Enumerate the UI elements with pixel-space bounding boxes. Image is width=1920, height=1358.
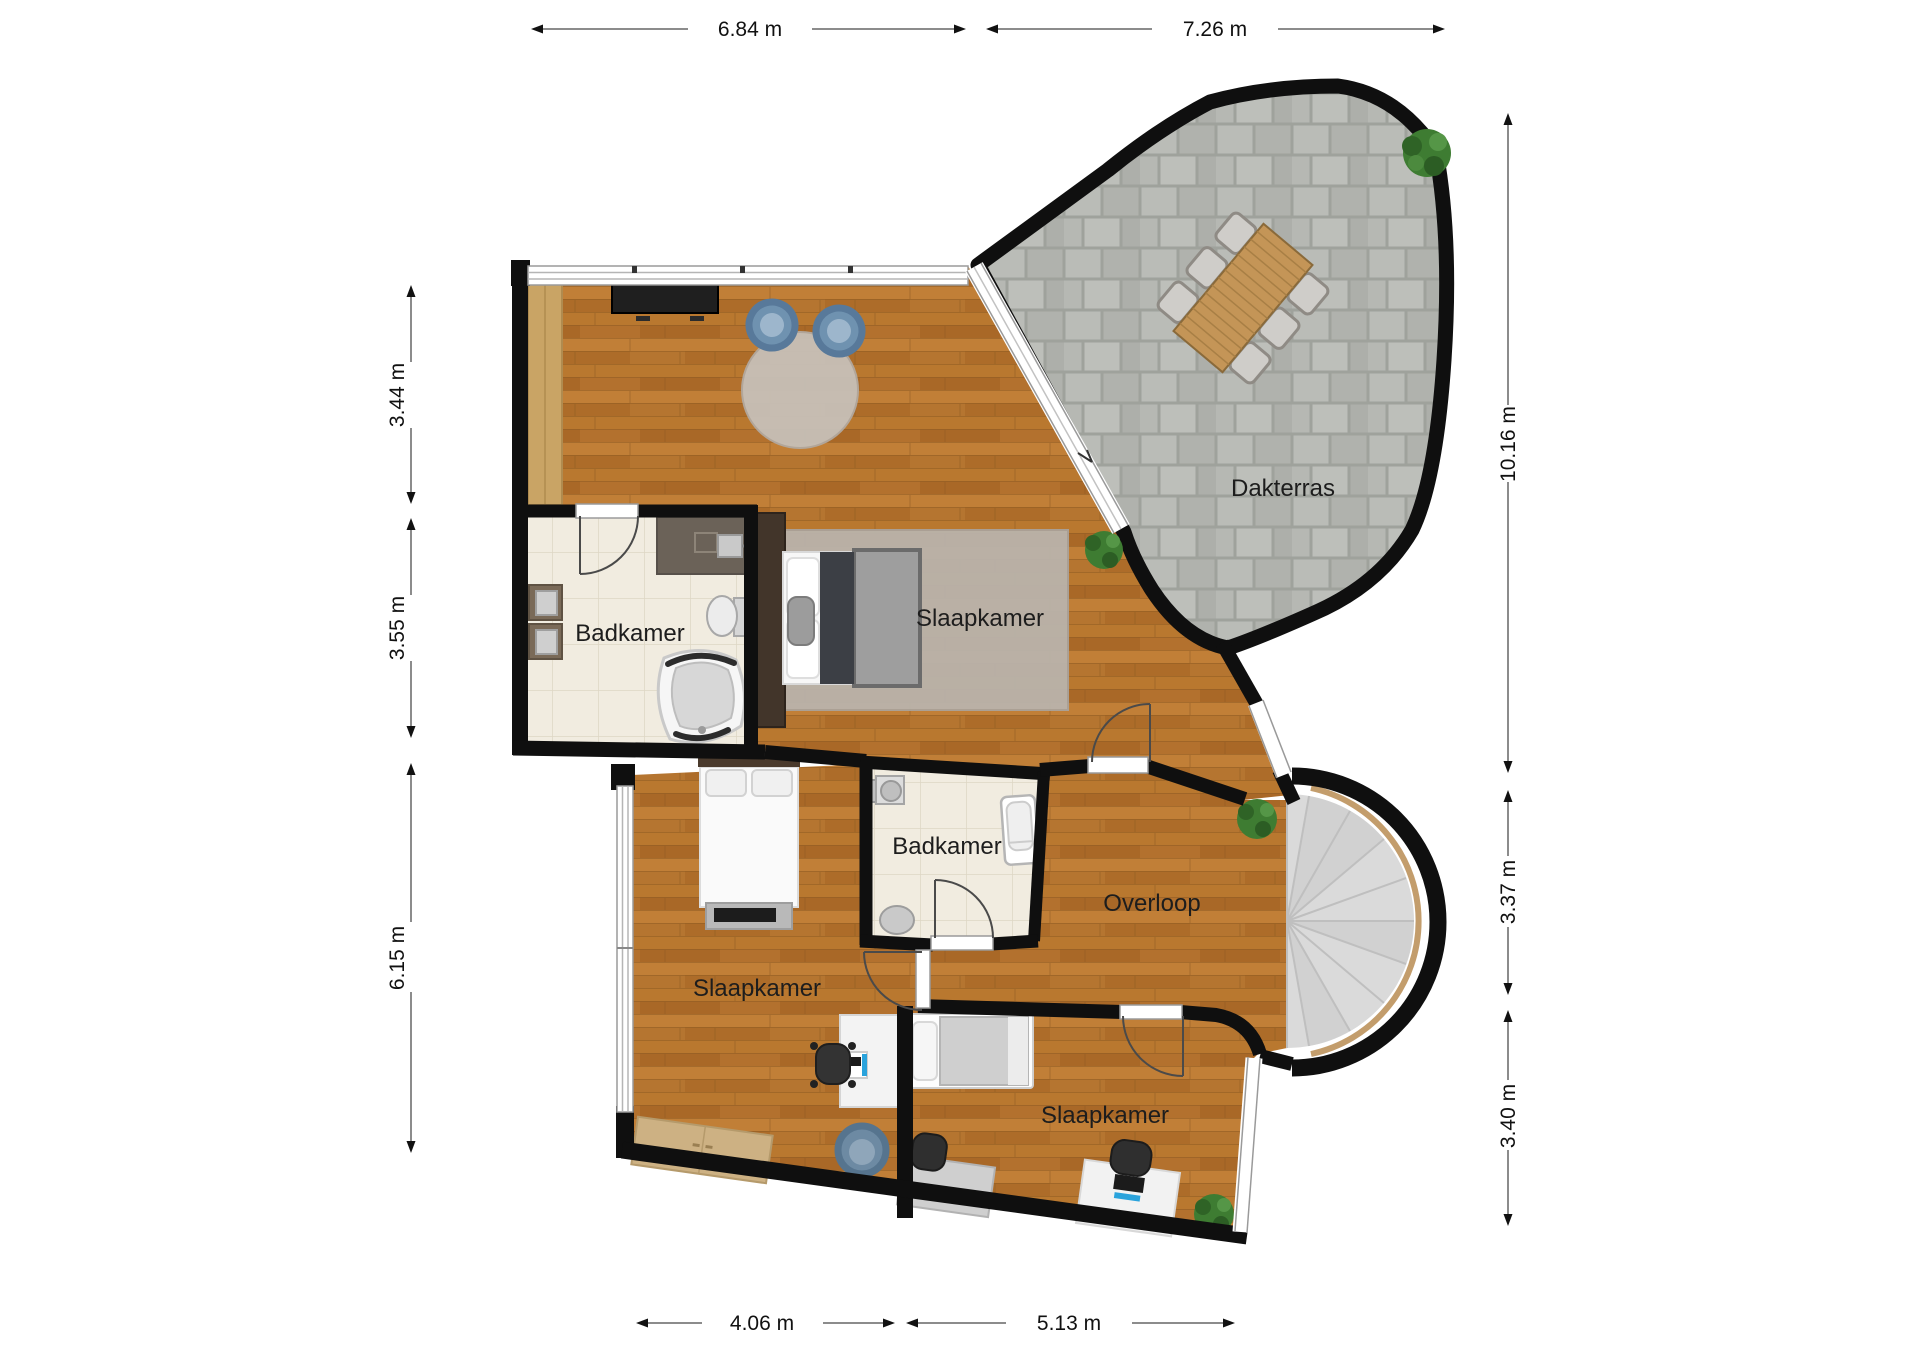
sideboard (612, 285, 718, 313)
toilet-icon (880, 906, 914, 934)
threshold-bedroomBL (916, 950, 930, 1008)
vanity-sink (718, 535, 742, 557)
indoor-plant-icon (1085, 531, 1123, 569)
bed-blanket (854, 550, 920, 686)
bed-duvet-dark (820, 552, 854, 684)
floorplan-drawing: Dakterras Slaapkamer Badkamer Badkamer O… (0, 0, 1920, 1358)
room-label-slaapkamer-hoofd: Slaapkamer (916, 605, 1044, 632)
threshold-bath1 (576, 504, 638, 518)
wall-bay-to-window (1260, 1056, 1292, 1064)
wall-upper-bottom (765, 752, 866, 761)
room-label-overloop: Overloop (1103, 890, 1200, 917)
stair-bay (1287, 776, 1438, 1068)
wall-overloop-top-a (1040, 766, 1090, 770)
office-chair-icon (1109, 1138, 1153, 1177)
dim-bottom-1: 4.06 m (730, 1312, 794, 1335)
room-label-badkamer-midden: Badkamer (892, 833, 1001, 860)
indoor-plant-icon (1237, 799, 1277, 839)
single-bed (903, 1014, 1033, 1088)
pillow (913, 1022, 937, 1080)
double-bed (698, 757, 800, 929)
dim-right-3: 3.40 m (1497, 1084, 1520, 1148)
wall-bedroomBR-top-a (918, 1006, 1122, 1012)
room-label-slaapkamer-linksonder: Slaapkamer (693, 975, 821, 1002)
office-chair-icon (910, 1132, 949, 1172)
pillow (706, 770, 746, 796)
window-left-lower (617, 786, 633, 1112)
room-label-slaapkamer-rechtsonder: Slaapkamer (1041, 1102, 1169, 1129)
wall-bath2-bottom-a (860, 941, 933, 945)
wall-upper-bottom-left (513, 748, 765, 752)
dim-left-2: 3.55 m (386, 596, 409, 660)
corner-bathtub-icon (658, 650, 744, 742)
dim-left-3: 6.15 m (386, 926, 409, 990)
threshold-bedroomBR (1120, 1005, 1182, 1019)
tv-on-bench (714, 908, 776, 922)
wall-corner-block (511, 260, 530, 286)
headboard-panel (757, 513, 785, 727)
toilet-icon (707, 596, 746, 636)
sideboard-foot (690, 316, 704, 321)
dim-bottom-2: 5.13 m (1037, 1312, 1101, 1335)
dim-left-1: 3.44 m (386, 363, 409, 427)
dim-top-2: 7.26 m (1183, 18, 1247, 41)
wall-bath2-bottom-b (991, 941, 1038, 944)
window-top-band (528, 266, 968, 285)
tub-chair-icon (838, 1126, 886, 1174)
dim-right-2: 3.37 m (1497, 860, 1520, 924)
room-label-dakterras: Dakterras (1231, 475, 1335, 502)
room-label-badkamer-links: Badkamer (575, 620, 684, 647)
pillow (752, 770, 792, 796)
floorplan-page: Dakterras Slaapkamer Badkamer Badkamer O… (0, 0, 1920, 1358)
threshold-bath2 (931, 936, 993, 950)
threshold-overloop-bedroom (1088, 757, 1148, 773)
throw-pillow (788, 597, 814, 645)
dim-top-1: 6.84 m (718, 18, 782, 41)
sideboard-foot (636, 316, 650, 321)
dim-right-1: 10.16 m (1497, 406, 1520, 482)
